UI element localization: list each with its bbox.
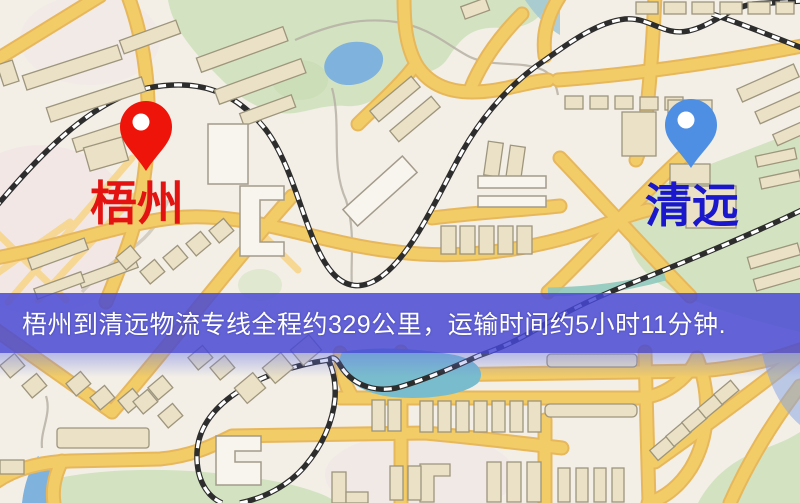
map[interactable]: 梧州 清远 梧州到清远物流专线全程约329公里，运输时间约5小时11分钟. [0,0,800,503]
destination-label: 清远 [645,179,739,234]
pin-hole [133,114,150,131]
route-info-banner: 梧州到清远物流专线全程约329公里，运输时间约5小时11分钟. [0,293,800,353]
route-info-text: 梧州到清远物流专线全程约329公里，运输时间约5小时11分钟. [0,305,726,341]
building [216,436,261,485]
pin-hole [678,112,695,129]
origin-label: 梧州 [90,177,184,232]
